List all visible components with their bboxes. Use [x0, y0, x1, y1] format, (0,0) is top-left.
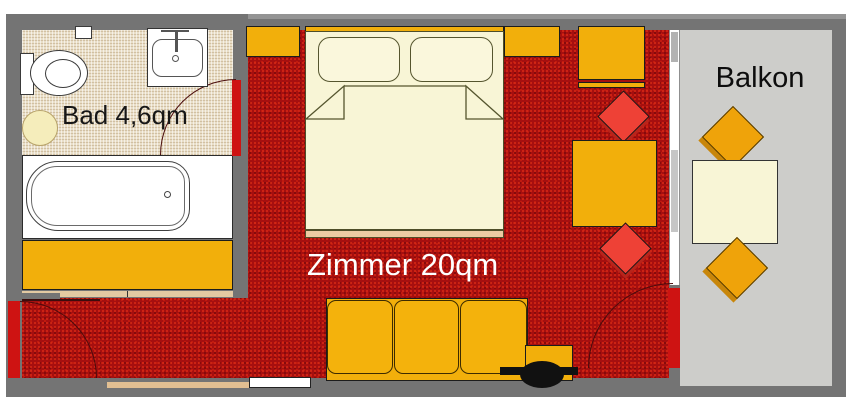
sofa-cushion-right	[460, 300, 527, 374]
sofa-cushion-left	[327, 300, 393, 374]
toilet-bowl-inner	[45, 59, 81, 88]
baseboard-strip	[107, 382, 250, 388]
double-bed	[305, 31, 504, 230]
wall-cabinet	[75, 26, 92, 39]
desk-shelf	[578, 82, 645, 88]
desk	[578, 26, 645, 80]
bathtub-drain-icon	[164, 191, 171, 198]
window-frame-segment-upper	[671, 32, 678, 62]
floorplan: Bad 4,6qm Zimmer 20qm Balkon	[0, 0, 851, 413]
washbasin-drain-icon	[172, 55, 179, 62]
bathtub-inner-rim	[31, 166, 185, 226]
wardrobe	[22, 240, 233, 290]
blanket-fold	[306, 32, 503, 229]
room-label: Zimmer 20qm	[307, 247, 498, 283]
bed-footboard	[305, 230, 504, 238]
nightstand-right	[504, 26, 560, 57]
nightstand-left	[246, 26, 300, 57]
sofa-cushion-middle	[394, 300, 459, 374]
window-frame-segment-lower	[671, 150, 678, 232]
tv-screen-bar	[500, 367, 578, 375]
bathroom-label: Bad 4,6qm	[62, 100, 188, 131]
balcony-table	[692, 160, 778, 244]
entry-threshold-line	[22, 299, 100, 301]
side-table	[572, 140, 657, 227]
radiator	[249, 377, 311, 388]
wardrobe-plinth-divider	[127, 291, 128, 297]
bathroom-stool	[22, 110, 58, 146]
faucet-stem-icon	[175, 30, 178, 52]
entrance-door	[8, 301, 20, 378]
balcony-label: Balkon	[690, 62, 830, 95]
